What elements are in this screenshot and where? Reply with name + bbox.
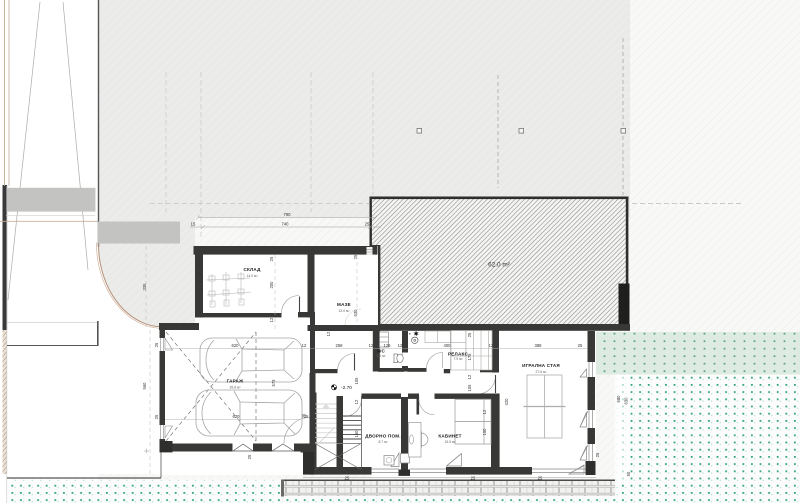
svg-text:ИГРАЛНА СТАЯ: ИГРАЛНА СТАЯ [522, 363, 560, 368]
svg-text:25: 25 [471, 476, 476, 481]
svg-text:25: 25 [595, 452, 600, 457]
svg-text:175: 175 [467, 353, 472, 361]
svg-text:12.0 м²: 12.0 м² [338, 309, 350, 313]
svg-text:258: 258 [336, 343, 344, 348]
svg-text:200: 200 [269, 281, 274, 289]
svg-text:3.0 м²: 3.0 м² [376, 354, 386, 358]
svg-text:ГАРАЖ: ГАРАЖ [227, 379, 244, 384]
svg-text:50: 50 [626, 471, 631, 476]
svg-text:12: 12 [369, 343, 374, 348]
svg-text:573: 573 [271, 379, 276, 387]
svg-text:105: 105 [467, 384, 472, 392]
svg-text:КАБИНЕТ: КАБИНЕТ [438, 434, 461, 439]
svg-text:-2.70: -2.70 [341, 385, 352, 391]
svg-text:740: 740 [282, 222, 290, 227]
svg-text:25: 25 [154, 414, 159, 419]
svg-text:25: 25 [467, 332, 472, 337]
svg-text:25: 25 [345, 476, 350, 481]
svg-text:12: 12 [326, 331, 331, 336]
svg-text:15.5 м²: 15.5 м² [444, 440, 456, 444]
svg-text:105: 105 [354, 377, 359, 385]
svg-text:14.0 м²: 14.0 м² [246, 274, 258, 278]
svg-text:25: 25 [247, 454, 252, 459]
svg-text:790: 790 [284, 212, 292, 217]
svg-text:МАЗЕ: МАЗЕ [337, 302, 351, 307]
svg-text:ДВОРНО ПОМ.: ДВОРНО ПОМ. [365, 434, 400, 439]
svg-text:150: 150 [482, 428, 487, 436]
svg-text:25: 25 [269, 256, 274, 261]
svg-text:12: 12 [489, 343, 494, 348]
svg-text:150: 150 [354, 430, 359, 438]
svg-text:12: 12 [398, 343, 403, 348]
svg-text:25: 25 [154, 342, 159, 347]
svg-text:8.7 м²: 8.7 м² [378, 440, 388, 444]
svg-text:РЕЛАКС: РЕЛАКС [448, 352, 468, 357]
svg-text:12: 12 [467, 374, 472, 379]
svg-text:25: 25 [538, 476, 543, 481]
svg-text:12: 12 [302, 343, 307, 348]
svg-text:560: 560 [142, 382, 147, 390]
svg-text:12: 12 [354, 399, 359, 404]
svg-text:WC: WC [377, 349, 386, 354]
svg-text:388: 388 [535, 343, 543, 348]
svg-text:25: 25 [578, 343, 583, 348]
svg-text:126: 126 [384, 343, 392, 348]
svg-text:25: 25 [365, 222, 370, 227]
svg-text:39.8 м²: 39.8 м² [229, 386, 241, 390]
svg-text:12: 12 [482, 409, 487, 414]
svg-text:7.9 м²: 7.9 м² [453, 357, 463, 361]
svg-text:12: 12 [269, 317, 274, 322]
svg-text:680: 680 [616, 395, 621, 403]
svg-text:27.6 м²: 27.6 м² [535, 370, 547, 374]
svg-text:620: 620 [233, 414, 241, 419]
svg-text:25: 25 [302, 413, 307, 418]
svg-text:630: 630 [624, 397, 629, 405]
svg-text:62.0 m²: 62.0 m² [488, 262, 510, 269]
svg-text:620: 620 [232, 343, 240, 348]
svg-text:СКЛАД: СКЛАД [243, 267, 261, 272]
svg-text:15: 15 [191, 222, 196, 227]
svg-text:400: 400 [444, 343, 452, 348]
svg-text:420: 420 [504, 398, 509, 406]
